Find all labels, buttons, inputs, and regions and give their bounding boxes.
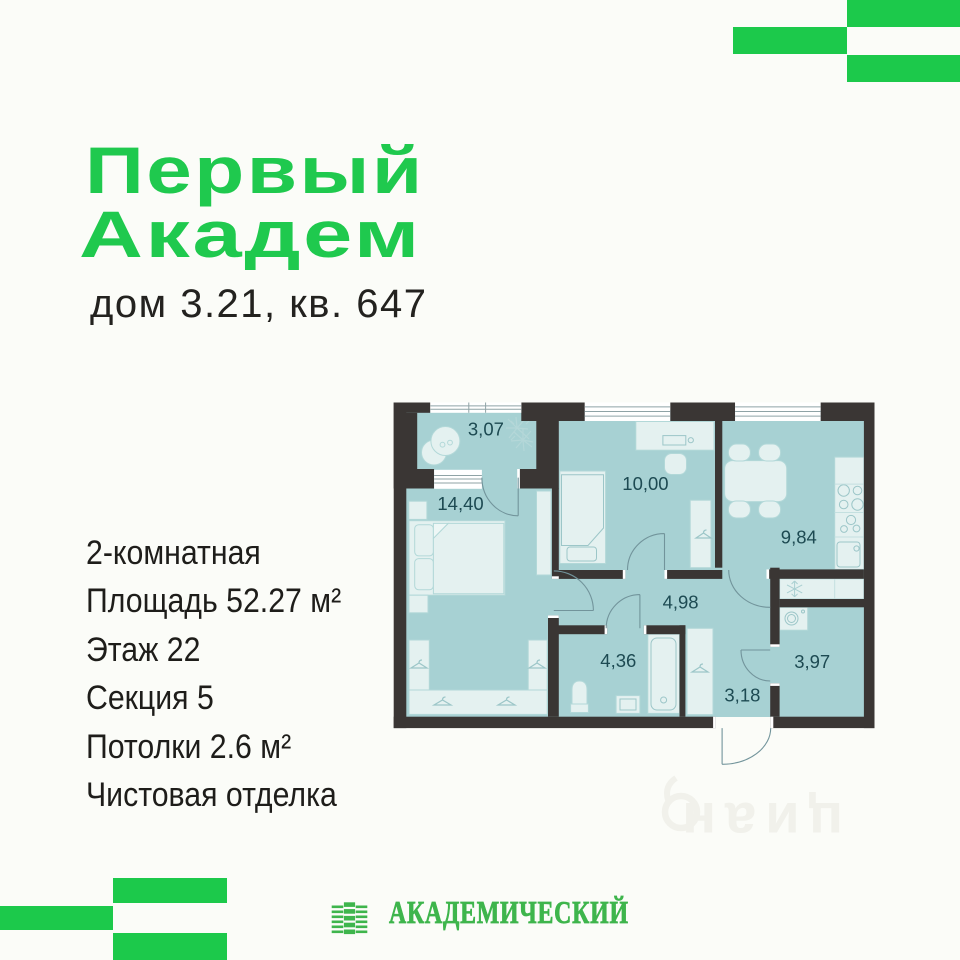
svg-text:3,97: 3,97	[794, 651, 830, 672]
svg-text:10,00: 10,00	[622, 473, 668, 494]
svg-text:4,36: 4,36	[600, 650, 636, 671]
svg-text:3,18: 3,18	[724, 684, 760, 705]
svg-text:циан: циан	[673, 791, 843, 854]
svg-text:14,40: 14,40	[437, 493, 483, 514]
svg-text:4,98: 4,98	[663, 592, 699, 613]
svg-text:3,07: 3,07	[468, 419, 504, 440]
svg-text:9,84: 9,84	[781, 527, 817, 548]
